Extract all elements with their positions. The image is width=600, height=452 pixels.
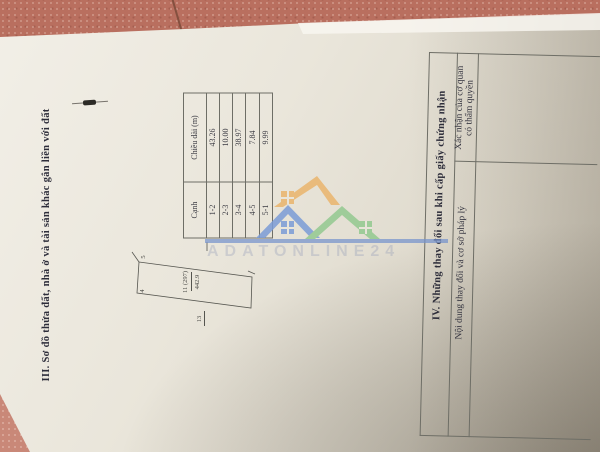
section-iv-heading: IV. Những thay đổi sau khi cấp giấy chứn… [432, 90, 448, 320]
column-header-noi-dung: Nội dung thay đổi và cơ sở pháp lý [455, 206, 468, 340]
section-iv-table: IV. Những thay đổi sau khi cấp giấy chứn… [0, 0, 600, 452]
table-border [420, 435, 591, 440]
column-header-xac-nhan-line2: có thẩm quyền [465, 80, 476, 136]
table-border [420, 52, 430, 436]
photo-of-land-certificate: III. Sơ đồ thửa đất, nhà ở và tài sản kh… [0, 0, 600, 452]
table-border [429, 52, 600, 57]
